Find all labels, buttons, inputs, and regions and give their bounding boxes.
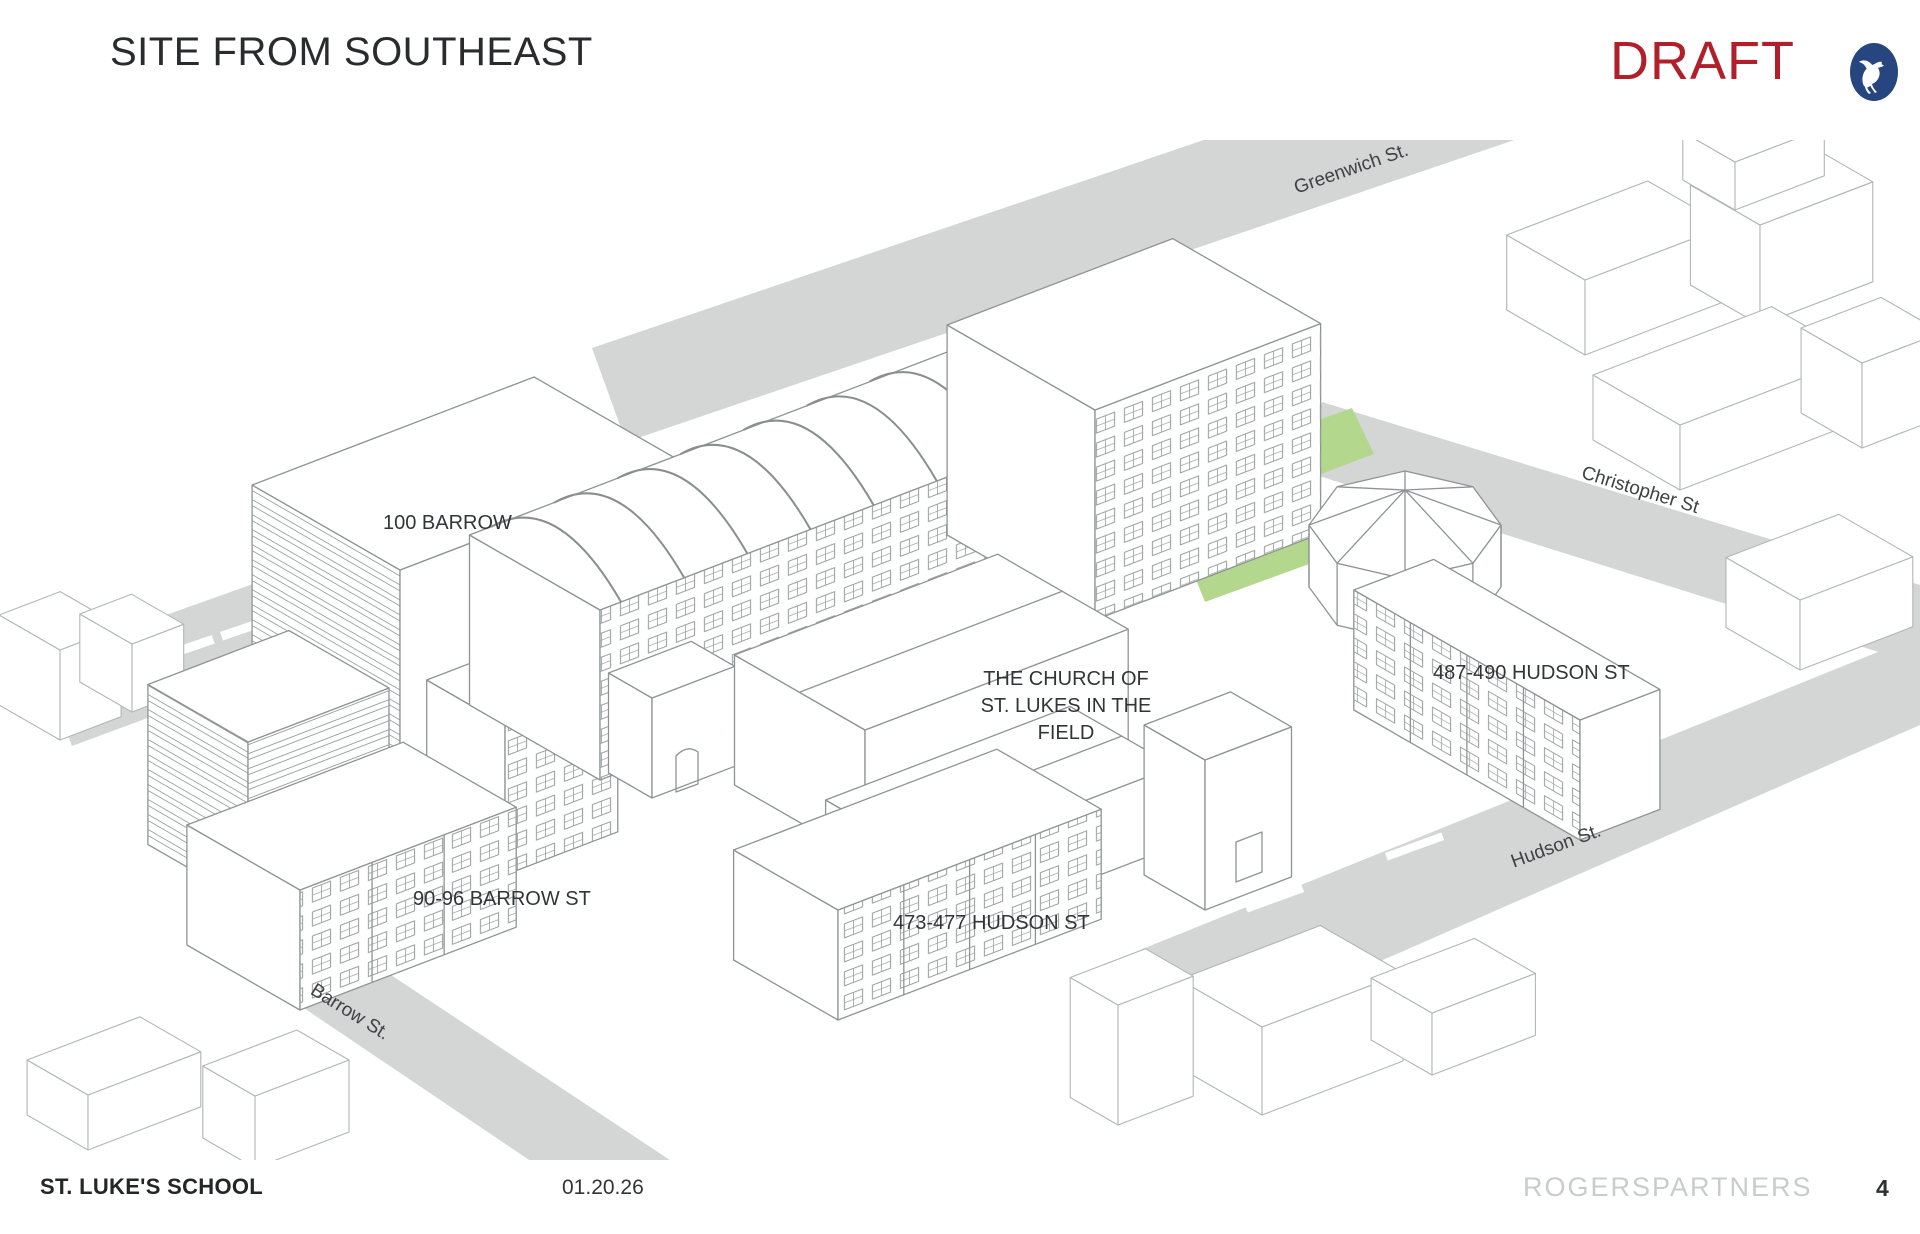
- footer-date: 01.20.26: [562, 1176, 644, 1200]
- label-100-barrow: 100 BARROW: [383, 512, 512, 535]
- label-church-line3: FIELD: [978, 720, 1154, 747]
- draft-watermark: DRAFT: [1610, 30, 1795, 92]
- label-church-line2: ST. LUKES IN THE: [978, 693, 1154, 720]
- label-church: THE CHURCH OF ST. LUKES IN THE FIELD: [978, 666, 1154, 747]
- label-473-477-hudson: 473-477 HUDSON ST: [893, 912, 1090, 935]
- page-title: SITE FROM SOUTHEAST: [110, 30, 593, 75]
- footer-firm-logo: ROGERSPARTNERS: [1523, 1172, 1813, 1203]
- slide-page: SITE FROM SOUTHEAST DRAFT: [0, 0, 1920, 1234]
- footer-page-number: 4: [1876, 1175, 1889, 1202]
- label-90-96-barrow: 90-96 BARROW ST: [413, 888, 591, 911]
- label-487-490-hudson: 487-490 HUDSON ST: [1433, 662, 1630, 685]
- label-church-line1: THE CHURCH OF: [978, 666, 1154, 693]
- site-axonometric-figure: 100 BARROW 90-96 BARROW ST 473-477 HUDSO…: [0, 140, 1920, 1160]
- pegasus-logo-icon: [1845, 40, 1903, 104]
- site-axonometric-drawing: [0, 140, 1920, 1160]
- footer-project-name: ST. LUKE'S SCHOOL: [40, 1174, 263, 1200]
